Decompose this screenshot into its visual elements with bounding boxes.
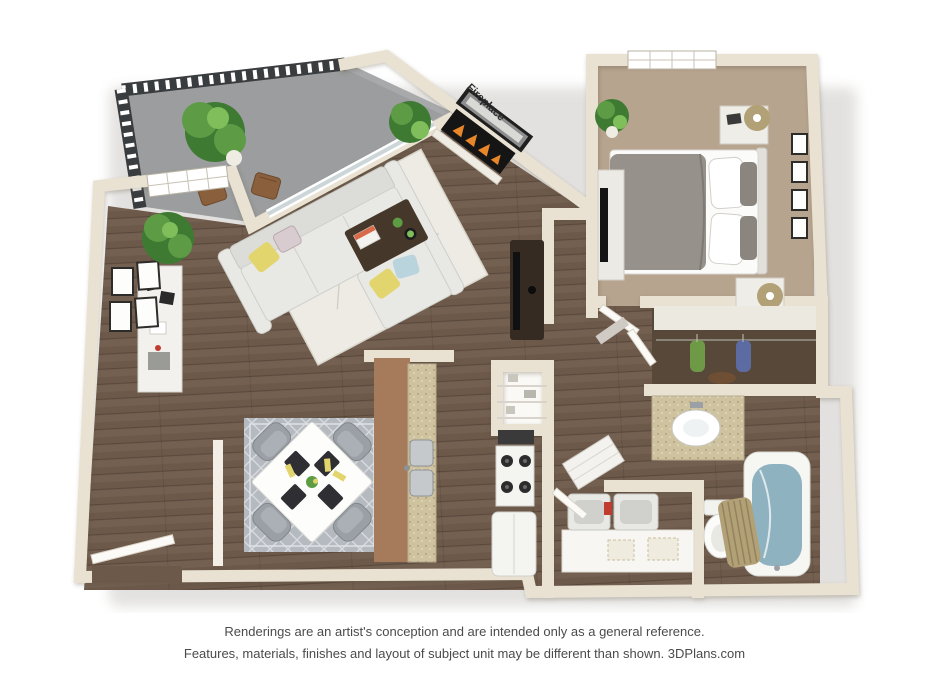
hanging-clothes-green [690, 340, 705, 372]
kitchen-sink [410, 470, 433, 496]
floorplan-rendering: Fireplace [0, 0, 929, 613]
accent-pillow [740, 216, 757, 260]
entry-threshold [92, 566, 182, 583]
kitchen-sink [410, 440, 433, 466]
shoes [708, 372, 736, 384]
hanging-clothes-blue [736, 340, 751, 372]
tv-console [510, 240, 544, 340]
bedroom-dresser [598, 170, 624, 280]
refrigerator [492, 512, 536, 576]
microwave [498, 430, 534, 444]
tv-screen [513, 252, 520, 330]
bedroom-tv [600, 188, 608, 262]
living-plant [389, 101, 431, 143]
disclaimer-caption: Renderings are an artist's conception an… [0, 621, 929, 665]
floorplan-page: Fireplace [0, 0, 929, 697]
red-flower [155, 345, 161, 351]
kitchen-peninsula [374, 358, 436, 562]
accent-pillow [740, 162, 757, 206]
folded-towels [648, 538, 678, 560]
bedroom-window [628, 51, 716, 69]
bathroom-vanity [652, 396, 744, 460]
detergent-bottle [604, 502, 612, 515]
caption-line-2: Features, materials, finishes and layout… [0, 643, 929, 665]
entry-plant [142, 212, 194, 264]
tub-faucet [774, 565, 780, 571]
range-stove [496, 446, 534, 506]
vanity-faucet [690, 402, 703, 408]
caption-line-1: Renderings are an artist's conception an… [0, 621, 929, 643]
folded-towels [608, 540, 634, 560]
nightstand [720, 105, 770, 144]
closet-shelf [654, 306, 816, 330]
kitchen-faucet [404, 465, 410, 471]
bed [610, 148, 767, 274]
